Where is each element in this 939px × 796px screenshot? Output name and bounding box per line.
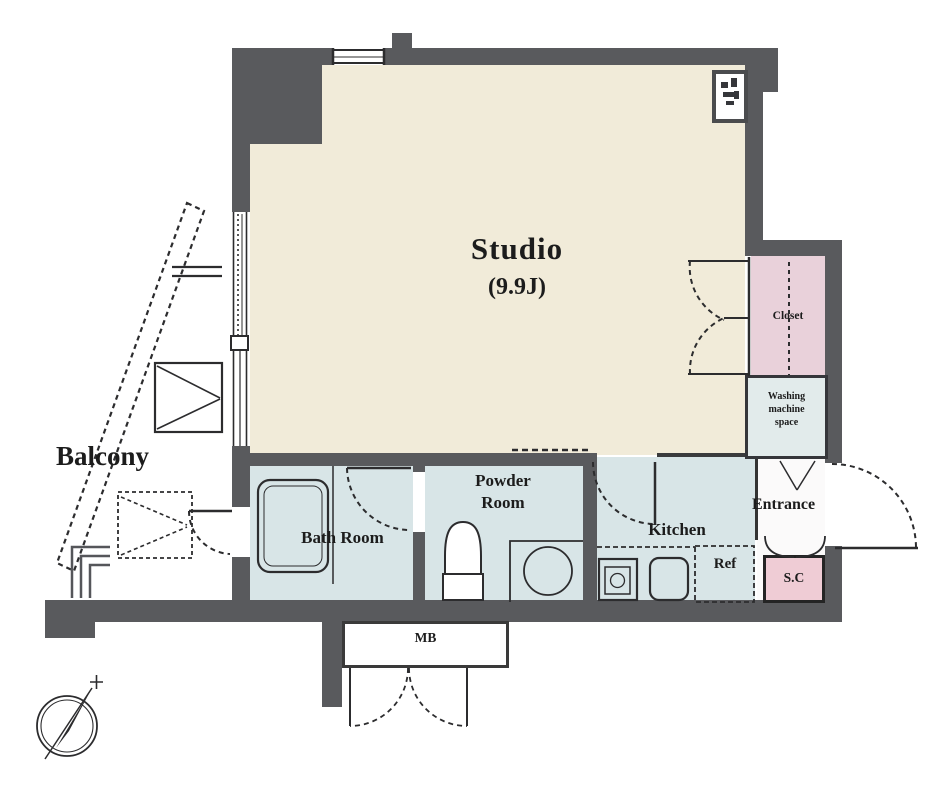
meter-box-doors — [350, 668, 467, 726]
kitchen-sink — [650, 558, 688, 600]
bath-door — [347, 468, 411, 530]
closet-label: Closet — [751, 310, 825, 322]
compass-icon — [37, 675, 103, 759]
stove — [599, 559, 637, 600]
studio-size-label: (9.9J) — [402, 274, 632, 301]
powder-line2: Room — [443, 492, 563, 514]
pipe-space-glyph — [721, 78, 739, 105]
washing-line1: Washing — [747, 390, 826, 403]
wash-basin — [510, 541, 583, 602]
washing-line2: machine — [747, 403, 826, 416]
balcony-railing — [57, 203, 204, 571]
meter-box-label: MB — [342, 630, 509, 646]
refrigerator-space — [695, 546, 754, 602]
toilet — [443, 522, 483, 600]
floor-plan: Studio (9.9J) Balcony Bath Room Powder R… — [0, 0, 939, 796]
balcony-steps — [72, 547, 110, 598]
balcony-window — [172, 212, 250, 446]
powder-line1: Powder — [443, 470, 563, 492]
refrigerator-label: Ref — [700, 556, 750, 573]
escape-hatch — [118, 492, 192, 558]
top-window — [332, 48, 385, 65]
entrance-label: Entrance — [736, 496, 831, 514]
kitchen-label: Kitchen — [617, 520, 737, 540]
shoe-closet-folding-doors — [765, 536, 825, 557]
bathroom-label: Bath Room — [270, 528, 415, 548]
bathtub — [258, 466, 333, 584]
shoe-closet-label: S.C — [763, 570, 825, 586]
powder-room-label: Powder Room — [443, 470, 563, 514]
balcony-label: Balcony — [56, 441, 149, 472]
kitchen-door — [593, 462, 655, 525]
washing-machine-label: Washing machine space — [747, 390, 826, 429]
balcony-door — [189, 511, 232, 554]
studio-label: Studio — [402, 231, 632, 267]
washing-line3: space — [747, 416, 826, 429]
ac-outdoor-unit — [155, 363, 222, 432]
